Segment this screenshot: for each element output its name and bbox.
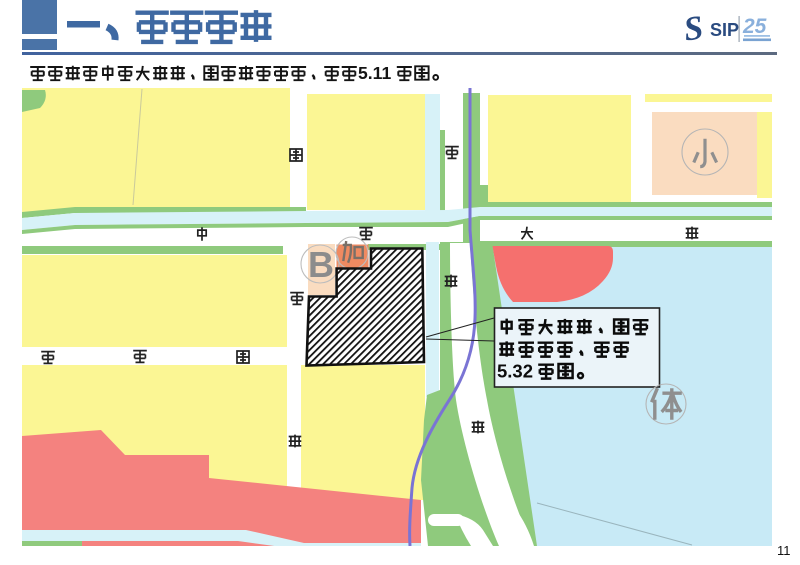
svg-text:5.11: 5.11	[358, 63, 391, 83]
svg-text:5.32: 5.32	[497, 360, 533, 381]
svg-text:S: S	[682, 9, 706, 48]
svg-text:25: 25	[742, 15, 767, 38]
svg-text:B: B	[308, 244, 334, 285]
svg-text:SIP: SIP	[710, 20, 739, 40]
